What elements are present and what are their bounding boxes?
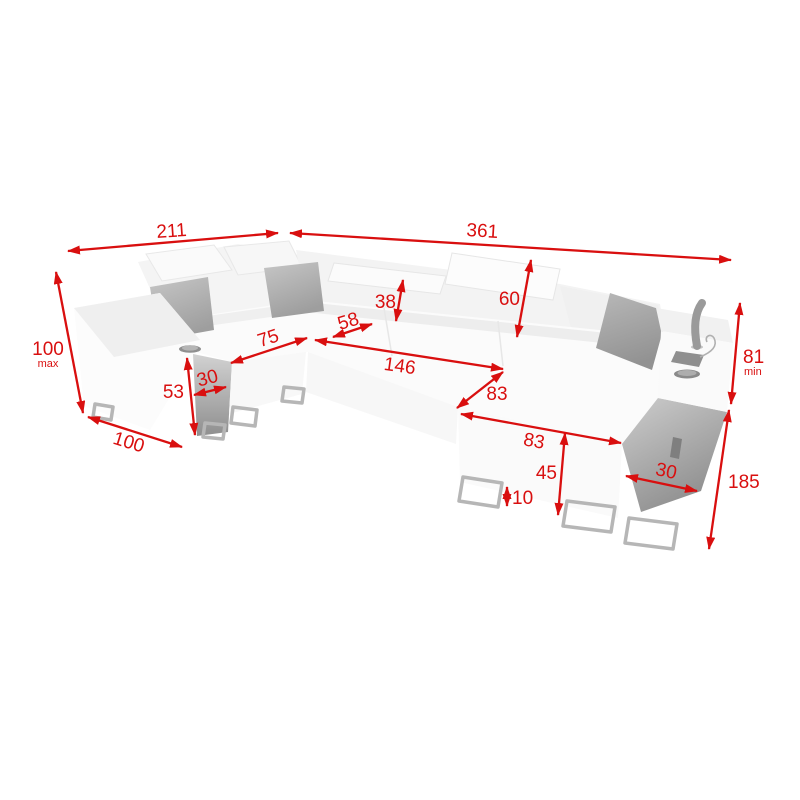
cup-holder-left-inner [182,345,198,350]
ottoman-front [229,352,306,414]
dim-label-sleep-depth: 83 [486,384,507,405]
dim-label-seat-height: 45 [536,463,557,484]
dim-label-back-height-max: 100 [32,339,64,360]
dim-line-arm-height-min [731,303,740,404]
dim-label-width-right: 361 [466,220,499,243]
dim-label-backrest: 60 [499,289,520,310]
sofa-dimension-diagram: 211 361 100 max 38 60 58 75 146 83 83 53… [0,0,800,800]
leg-chaise-right [625,518,677,549]
dim-label-arm-height-qualifier: min [744,366,762,378]
dim-label-headrest: 38 [375,292,396,313]
dim-label-depth-right: 185 [728,472,760,493]
dim-line-width-right [290,233,731,260]
dim-label-leg-height: 10 [512,488,533,509]
dim-label-arm-height-min: 81 [743,347,764,368]
dim-label-console-height: 53 [163,382,184,403]
dim-label-depth-left: 100 [110,428,146,457]
dim-label-seat-long: 146 [383,354,417,379]
cup-holder-right-inner [678,370,697,376]
dim-label-storage-width: 30 [654,459,679,484]
dim-label-back-height-qualifier: max [38,358,59,370]
dim-label-width-left: 211 [156,220,188,243]
pillow-left-2 [264,262,324,318]
dim-label-sleep-width: 83 [522,429,546,453]
